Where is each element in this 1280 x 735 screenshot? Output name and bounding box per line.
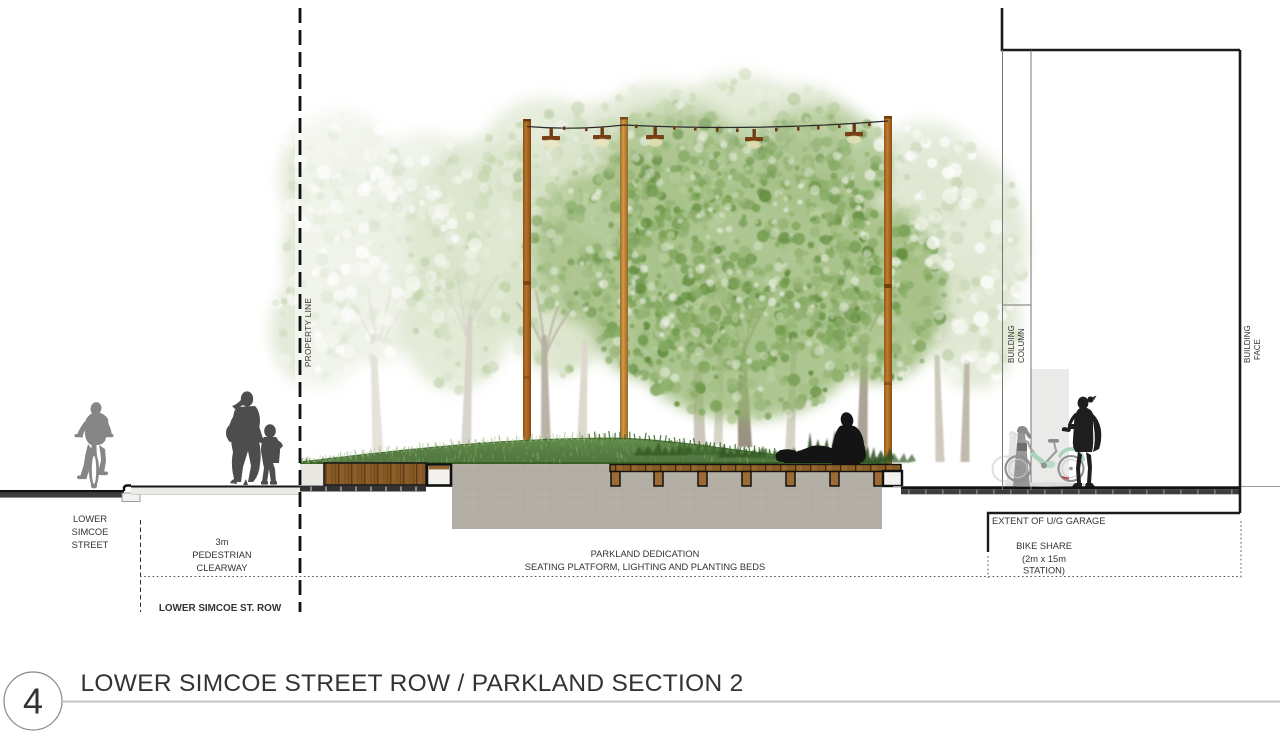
svg-text:SIMCOE: SIMCOE bbox=[72, 527, 109, 537]
svg-text:SEATING PLATFORM, LIGHTING AND: SEATING PLATFORM, LIGHTING AND PLANTING … bbox=[525, 562, 765, 572]
svg-text:COLUMN: COLUMN bbox=[1017, 328, 1026, 363]
svg-text:BUILDING: BUILDING bbox=[1243, 325, 1252, 363]
svg-text:LOWER SIMCOE STREET ROW / PARK: LOWER SIMCOE STREET ROW / PARKLAND SECTI… bbox=[81, 670, 744, 697]
svg-text:PARKLAND DEDICATION: PARKLAND DEDICATION bbox=[591, 549, 700, 559]
svg-text:3m: 3m bbox=[216, 537, 229, 547]
svg-text:CLEARWAY: CLEARWAY bbox=[197, 563, 248, 573]
svg-text:LOWER: LOWER bbox=[73, 514, 107, 524]
svg-text:STREET: STREET bbox=[72, 540, 109, 550]
svg-text:FACE: FACE bbox=[1253, 339, 1262, 360]
svg-text:(2m x 15m: (2m x 15m bbox=[1022, 554, 1066, 564]
svg-text:PROPERTY LINE: PROPERTY LINE bbox=[304, 298, 313, 367]
svg-text:STATION): STATION) bbox=[1023, 566, 1065, 576]
svg-text:BIKE SHARE: BIKE SHARE bbox=[1016, 541, 1072, 551]
svg-text:EXTENT OF U/G GARAGE: EXTENT OF U/G GARAGE bbox=[992, 516, 1105, 526]
svg-text:LOWER SIMCOE ST. ROW: LOWER SIMCOE ST. ROW bbox=[159, 603, 282, 614]
svg-text:BUILDING: BUILDING bbox=[1007, 325, 1016, 363]
svg-text:4: 4 bbox=[23, 681, 43, 722]
svg-text:PEDESTRIAN: PEDESTRIAN bbox=[192, 550, 251, 560]
